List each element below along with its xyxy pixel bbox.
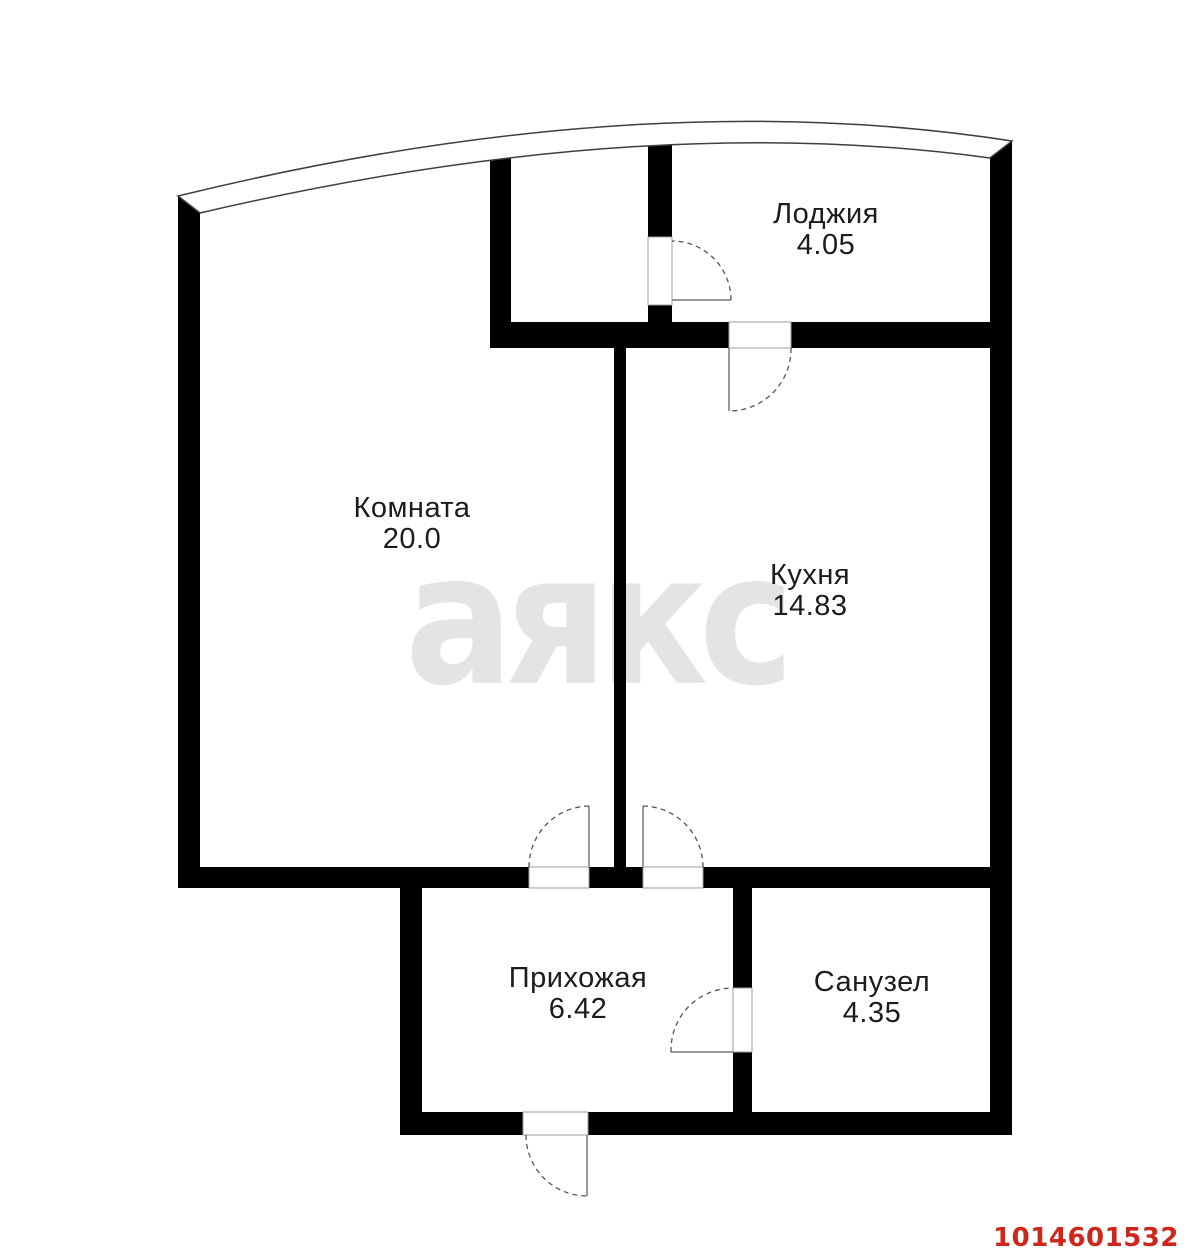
room-name: Лоджия: [773, 198, 879, 230]
wall-bathroom-left-lower: [733, 1052, 752, 1112]
wall-loggia-bottom-b: [791, 322, 1012, 348]
room-label-loggia: Лоджия 4.05: [773, 199, 879, 261]
room-area: 6.42: [509, 994, 647, 1025]
room-area: 20.0: [353, 524, 470, 555]
floor-plan: аякс: [0, 0, 1200, 1256]
wall-room-kitchen-divider: [614, 348, 626, 868]
loggia-door-arc: [672, 241, 731, 300]
entrance-door-opening: [523, 1112, 588, 1135]
kitchen-door-opening: [643, 867, 703, 888]
bathroom-door-arc: [671, 988, 733, 1052]
door-leaves: [587, 300, 733, 1196]
loggia-door-opening: [648, 237, 672, 305]
wall-mid-b: [589, 867, 643, 888]
wall-hallway-left: [400, 888, 422, 1135]
wall-mid-a: [178, 867, 529, 888]
room-label-hallway: Прихожая 6.42: [509, 963, 647, 1025]
kitchen-balcony-door-opening: [729, 322, 791, 348]
floor-plan-drawing: [0, 0, 1200, 1256]
room-label-kitchen: Кухня 14.83: [770, 560, 850, 622]
kitchen-balcony-door-arc: [729, 348, 791, 411]
kitchen-door-arc: [643, 806, 703, 867]
wall-mid-c: [703, 867, 1012, 888]
wall-bottom-a: [400, 1112, 523, 1135]
facade-curve: [178, 121, 1012, 213]
room-area: 14.83: [770, 591, 850, 622]
wall-loggia-bottom-a: [490, 322, 729, 348]
wall-right-outer: [990, 142, 1012, 1135]
room-name: Санузел: [814, 966, 930, 998]
wall-bathroom-left-upper: [733, 888, 752, 988]
room-door-opening: [529, 867, 589, 888]
room-area: 4.05: [773, 230, 879, 261]
room-name: Прихожая: [509, 962, 647, 994]
room-label-room: Комната 20.0: [353, 493, 470, 555]
room-area: 4.35: [814, 998, 930, 1029]
listing-id: 1014601532: [993, 1223, 1179, 1253]
room-name: Комната: [353, 492, 470, 524]
wall-closet-left: [490, 140, 511, 348]
wall-left-outer: [178, 196, 200, 888]
wall-bottom-b: [588, 1112, 1012, 1135]
room-name: Кухня: [770, 559, 850, 591]
bathroom-door-opening: [733, 988, 752, 1052]
room-label-bathroom: Санузел 4.35: [814, 967, 930, 1029]
entrance-door-arc: [526, 1135, 587, 1196]
room-door-arc: [529, 806, 589, 867]
